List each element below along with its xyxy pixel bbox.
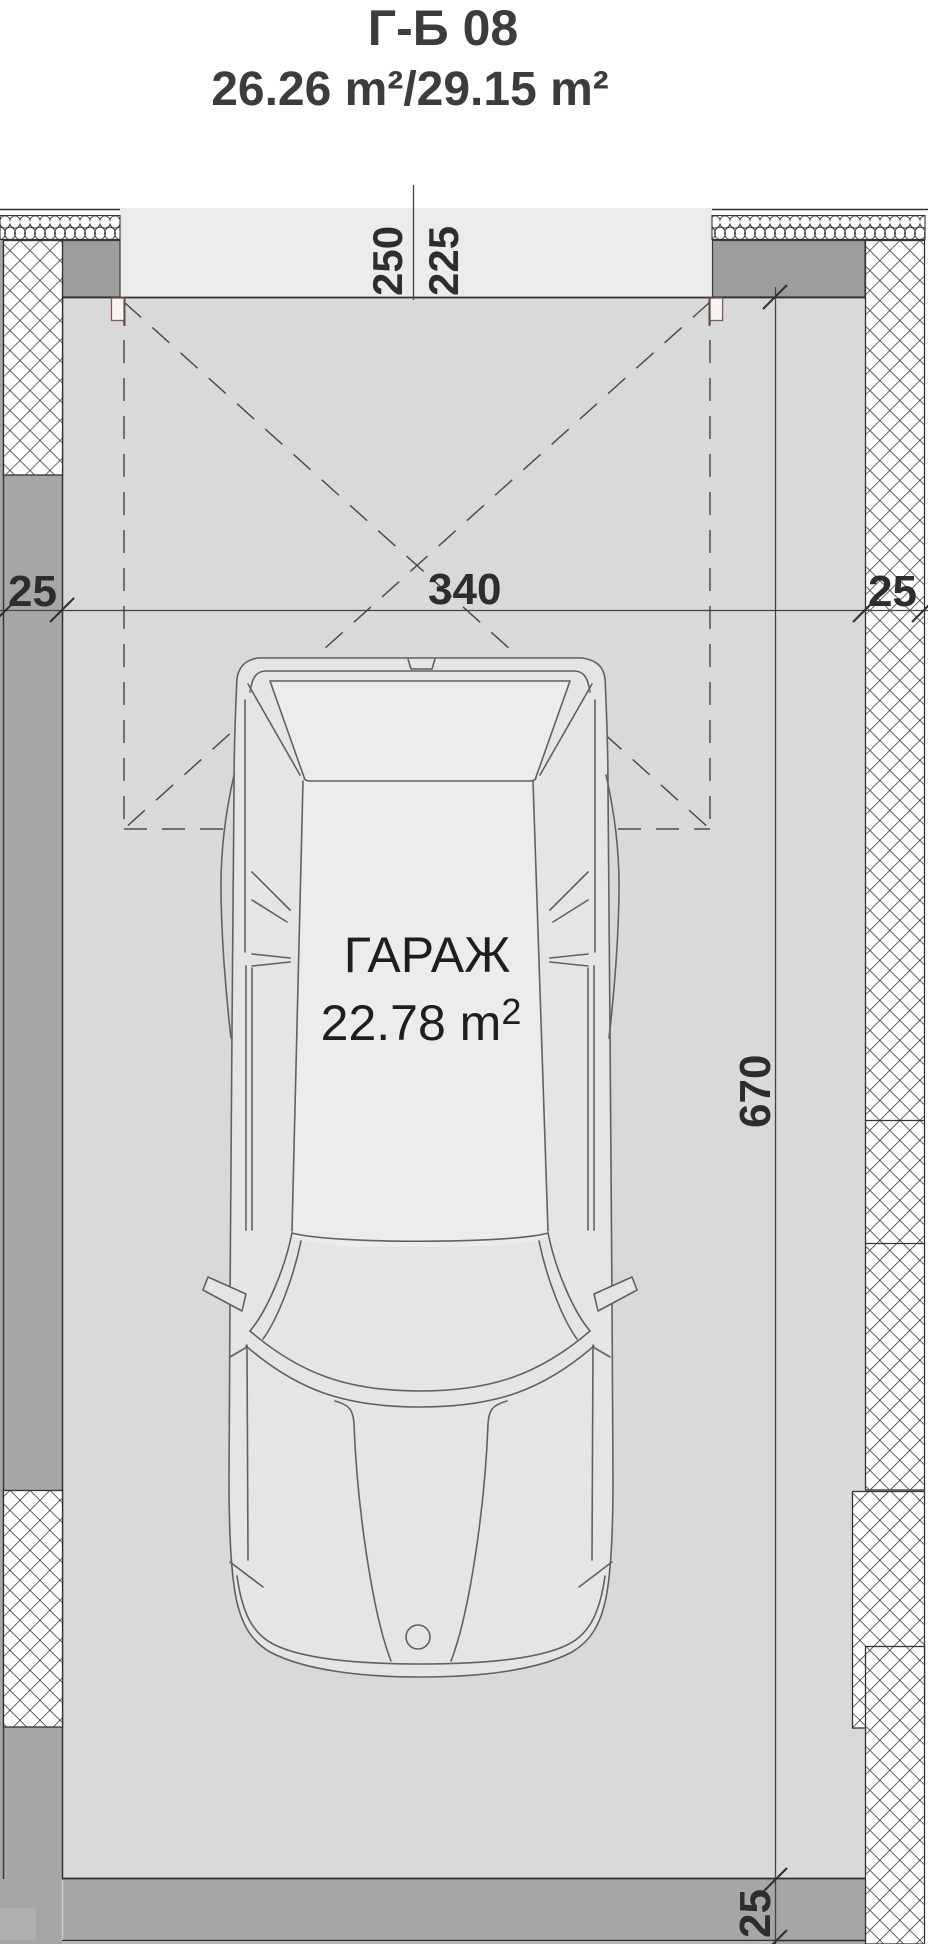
svg-text:340: 340 xyxy=(428,565,501,614)
svg-text:26.26 m²/29.15 m²: 26.26 m²/29.15 m² xyxy=(211,63,609,116)
svg-text:25: 25 xyxy=(868,567,917,616)
svg-text:22.78 m2: 22.78 m2 xyxy=(321,991,522,1051)
svg-text:250: 250 xyxy=(364,226,411,296)
svg-text:225: 225 xyxy=(420,226,467,296)
svg-text:670: 670 xyxy=(731,1055,780,1128)
svg-text:25: 25 xyxy=(8,567,57,616)
svg-text:ГАРАЖ: ГАРАЖ xyxy=(344,927,511,983)
svg-text:Г-Б 08: Г-Б 08 xyxy=(368,0,518,56)
svg-text:25: 25 xyxy=(731,1889,780,1938)
